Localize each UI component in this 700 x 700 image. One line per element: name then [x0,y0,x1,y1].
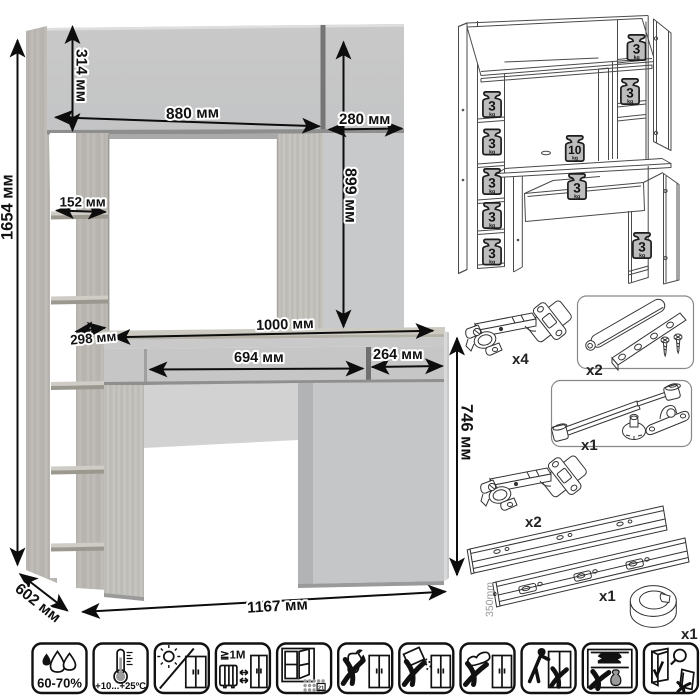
svg-text:152 мм: 152 мм [60,195,106,210]
svg-text:x1: x1 [581,437,598,454]
svg-text:746 мм: 746 мм [458,404,476,461]
svg-text:x1: x1 [681,626,698,643]
svg-text:x2: x2 [586,362,603,379]
svg-text:21: 21 [318,686,324,692]
svg-text:264 мм: 264 мм [373,347,423,363]
svg-text:880 мм: 880 мм [166,104,220,123]
svg-text:≧1М: ≧1М [220,650,246,662]
svg-text:+10...+25ºC: +10...+25ºC [95,681,146,692]
svg-text:1654 мм: 1654 мм [0,174,17,240]
svg-text:60-70%: 60-70% [37,676,82,691]
svg-text:kg: kg [572,156,578,162]
svg-text:314 мм: 314 мм [73,49,90,102]
svg-text:350mm: 350mm [484,582,496,617]
svg-text:694 мм: 694 мм [234,350,284,366]
svg-text:x1: x1 [599,588,616,605]
svg-text:1000 мм: 1000 мм [256,316,314,334]
svg-text:280 мм: 280 мм [339,111,390,128]
svg-text:x4: x4 [512,351,529,368]
svg-text:x2: x2 [525,514,542,531]
svg-text:1167 мм: 1167 мм [247,596,309,616]
svg-text:899 мм: 899 мм [342,168,359,223]
